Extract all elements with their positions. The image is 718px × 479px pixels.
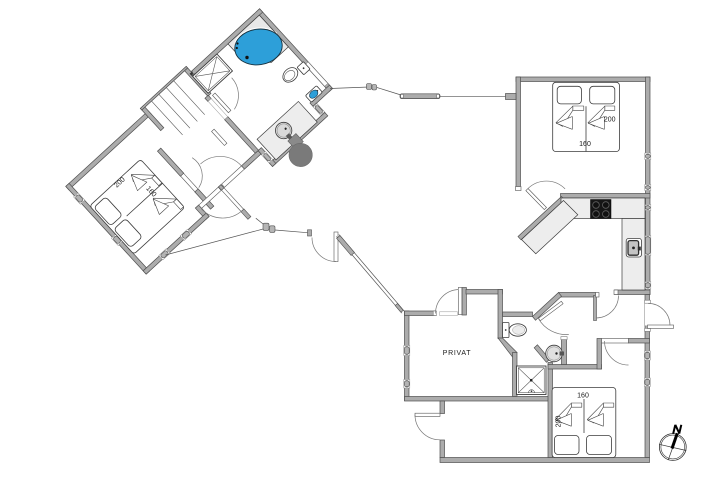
svg-text:PRIVAT: PRIVAT bbox=[443, 350, 471, 357]
svg-text:200: 200 bbox=[556, 416, 563, 428]
svg-text:160: 160 bbox=[579, 141, 591, 148]
svg-text:200: 200 bbox=[604, 117, 616, 124]
svg-text:160: 160 bbox=[577, 393, 589, 400]
